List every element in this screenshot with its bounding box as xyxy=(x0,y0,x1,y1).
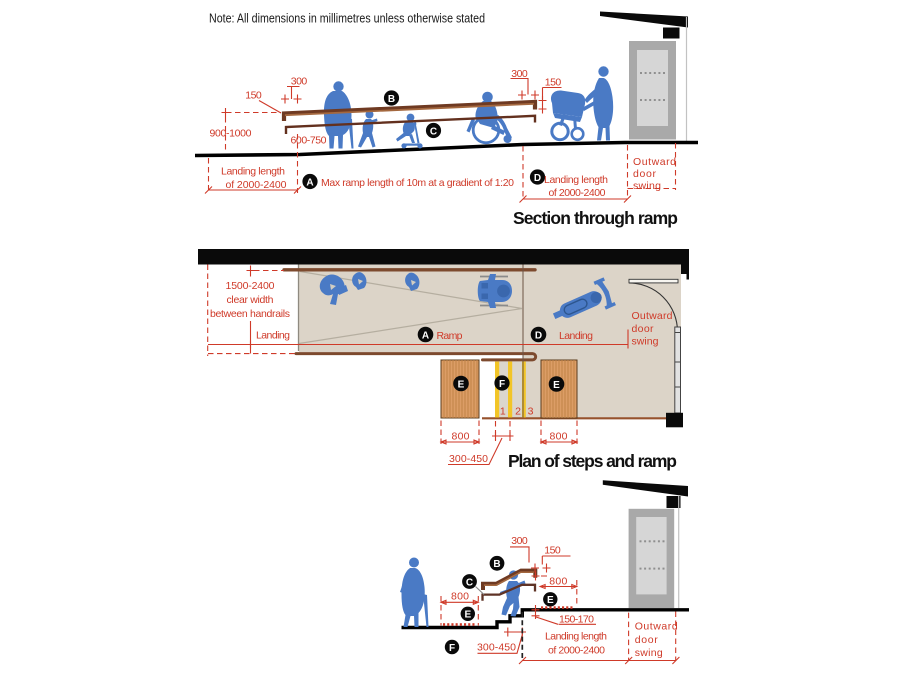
svg-text:Plan of steps and ramp: Plan of steps and ramp xyxy=(508,451,677,471)
svg-text:Section through ramp: Section through ramp xyxy=(513,208,678,228)
svg-text:Landing length: Landing length xyxy=(221,166,285,178)
svg-text:C: C xyxy=(430,126,437,137)
svg-text:Max ramp length of 10m at a gr: Max ramp length of 10m at a gradient of … xyxy=(321,177,514,189)
svg-text:D: D xyxy=(534,173,541,184)
svg-text:800: 800 xyxy=(550,431,568,443)
svg-text:swing: swing xyxy=(632,336,659,348)
svg-text:A: A xyxy=(422,330,429,341)
svg-text:E: E xyxy=(458,379,465,390)
svg-text:800: 800 xyxy=(451,591,469,603)
svg-text:of 2000-2400: of 2000-2400 xyxy=(548,645,605,657)
svg-text:swing: swing xyxy=(633,180,661,192)
svg-text:B: B xyxy=(493,559,500,570)
svg-text:2: 2 xyxy=(515,406,521,418)
svg-text:1: 1 xyxy=(500,406,506,418)
svg-text:150: 150 xyxy=(245,90,262,102)
svg-text:Landing: Landing xyxy=(256,330,290,342)
svg-text:150-170: 150-170 xyxy=(559,614,594,626)
svg-text:clear width: clear width xyxy=(227,294,274,306)
svg-text:D: D xyxy=(535,330,542,341)
svg-text:B: B xyxy=(388,94,395,105)
svg-text:between handrails: between handrails xyxy=(210,308,290,320)
svg-text:300: 300 xyxy=(291,76,308,88)
svg-text:Note: All dimensions in millim: Note: All dimensions in millimetres unle… xyxy=(209,12,485,26)
svg-text:of 2000-2400: of 2000-2400 xyxy=(549,187,606,199)
svg-text:800: 800 xyxy=(549,576,567,588)
svg-text:E: E xyxy=(553,380,560,391)
svg-text:door: door xyxy=(632,323,655,335)
svg-text:Outward: Outward xyxy=(632,310,673,322)
svg-text:600-750: 600-750 xyxy=(291,135,327,147)
svg-text:E: E xyxy=(547,595,554,606)
svg-text:door: door xyxy=(635,634,659,646)
svg-text:800: 800 xyxy=(452,431,470,443)
svg-text:Outward: Outward xyxy=(633,156,676,168)
svg-text:C: C xyxy=(466,577,473,588)
svg-text:Landing length: Landing length xyxy=(544,174,608,186)
svg-text:Landing: Landing xyxy=(559,330,593,342)
svg-text:Landing length: Landing length xyxy=(545,631,607,643)
svg-text:900-1000: 900-1000 xyxy=(210,128,252,140)
svg-text:300-450: 300-450 xyxy=(477,642,516,654)
svg-text:150: 150 xyxy=(545,77,562,89)
svg-text:F: F xyxy=(449,643,455,654)
svg-text:150: 150 xyxy=(544,545,561,557)
svg-text:A: A xyxy=(306,177,313,188)
svg-text:door: door xyxy=(633,168,657,180)
svg-text:swing: swing xyxy=(635,647,663,659)
svg-text:E: E xyxy=(464,610,471,621)
svg-text:F: F xyxy=(499,379,505,390)
svg-text:Ramp: Ramp xyxy=(437,330,463,342)
svg-text:300: 300 xyxy=(511,535,528,547)
svg-text:of 2000-2400: of 2000-2400 xyxy=(226,179,287,191)
svg-text:3: 3 xyxy=(528,406,534,418)
svg-text:300-450: 300-450 xyxy=(449,453,488,465)
svg-text:1500-2400: 1500-2400 xyxy=(226,280,275,292)
svg-text:Outward: Outward xyxy=(635,621,678,633)
